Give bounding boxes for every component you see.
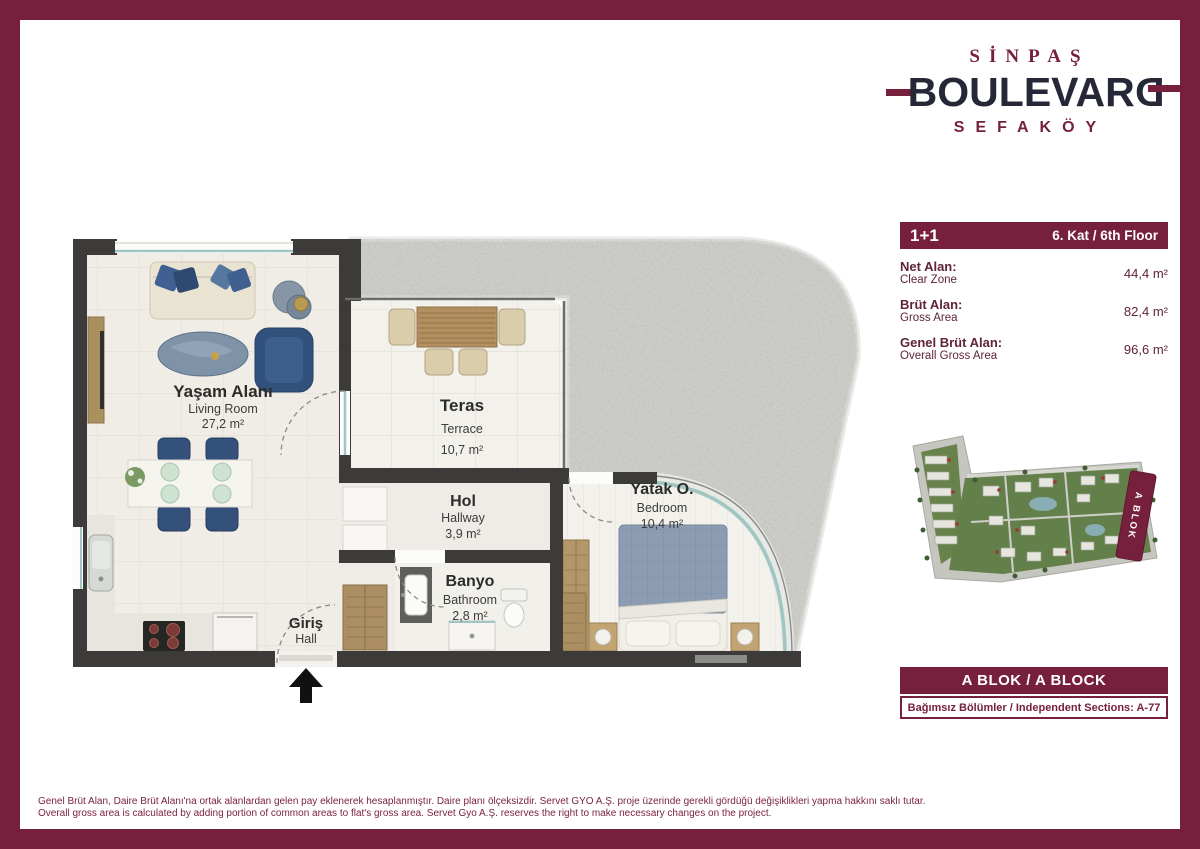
page-frame: SİNPAŞ BOULEVARD SEFAKÖY 1+1 6. Kat / 6t… (0, 0, 1200, 849)
plant (125, 467, 145, 487)
gross-area-label-tr: Brüt Alan: (900, 297, 962, 312)
living-room-name-tr: Yaşam Alanı (173, 382, 273, 401)
overall-gross-label-tr: Genel Brüt Alan: (900, 335, 1002, 350)
entrance-name-tr: Giriş (289, 615, 323, 632)
unit-floor: 6. Kat / 6th Floor (1052, 228, 1158, 243)
disclaimer: Genel Brüt Alan, Daire Brüt Alanı'na ort… (38, 796, 1168, 819)
unit-info-panel: 1+1 6. Kat / 6th Floor Net Alan: Clear Z… (900, 222, 1168, 363)
brand-main-reversed-d: D (1135, 70, 1165, 114)
bathroom-name-tr: Banyo (446, 573, 495, 590)
entrance-name-en: Hall (295, 632, 317, 646)
tv (100, 331, 104, 409)
floor-plan: Yaşam Alanı Living Room 27,2 m² Teras Te… (55, 225, 875, 705)
brand-sub-text: SEFAKÖY (860, 119, 1180, 137)
terrace-name-tr: Teras (440, 396, 484, 415)
hallway-name-en: Hallway (441, 511, 486, 525)
entrance-arrow-icon (289, 668, 323, 703)
living-room-area: 27,2 m² (202, 417, 244, 431)
terrace-chair (425, 349, 453, 375)
terrace-name-en: Terrace (441, 422, 483, 436)
pillow (626, 621, 670, 646)
page-canvas: SİNPAŞ BOULEVARD SEFAKÖY 1+1 6. Kat / 6t… (20, 20, 1180, 829)
brand-main-body: BOULEVAR (908, 70, 1135, 114)
bathroom-door-opening (395, 550, 445, 563)
bedroom-name-tr: Yatak O. (630, 481, 693, 498)
overall-gross-value: 96,6 m² (1124, 342, 1168, 357)
logo-dash-right-icon (1148, 85, 1180, 92)
toilet (501, 589, 527, 601)
cooktop (143, 621, 185, 651)
brand-logo: SİNPAŞ BOULEVARD SEFAKÖY (860, 46, 1180, 137)
gross-area-row: Brüt Alan: Gross Area 82,4 m² (900, 297, 1168, 325)
dining-chair (206, 505, 238, 531)
terrace-chair (499, 309, 525, 345)
block-title-bar: A BLOK / A BLOCK (900, 667, 1168, 694)
kitchen-appliance (213, 613, 257, 651)
lamp (737, 629, 753, 645)
terrace-chair (389, 309, 415, 345)
terrace-chair (459, 349, 487, 375)
unit-info-header: 1+1 6. Kat / 6th Floor (900, 222, 1168, 249)
brand-top-text: SİNPAŞ (860, 46, 1180, 68)
disclaimer-line-tr: Genel Brüt Alan, Daire Brüt Alanı'na ort… (38, 796, 1168, 808)
living-room-name-en: Living Room (188, 402, 257, 416)
dining-chair (206, 438, 238, 462)
hallway-name-tr: Hol (450, 493, 476, 510)
bedroom-door-opening (569, 472, 613, 484)
bathroom-sink (405, 575, 427, 615)
net-area-label-tr: Net Alan: (900, 259, 957, 274)
dining-table (128, 460, 252, 507)
gross-area-label-en: Gross Area (900, 312, 962, 325)
terrace-area: 10,7 m² (441, 443, 483, 457)
gross-area-value: 82,4 m² (1124, 304, 1168, 319)
hallway-area: 3,9 m² (445, 527, 480, 541)
unit-type: 1+1 (910, 226, 939, 246)
site-plan-map: A BLOK (905, 430, 1167, 590)
disclaimer-line-en: Overall gross area is calculated by addi… (38, 808, 1168, 820)
bedroom-area: 10,4 m² (641, 517, 683, 531)
bedroom-name-en: Bedroom (637, 501, 688, 515)
bathroom-area: 2,8 m² (452, 609, 487, 623)
net-area-value: 44,4 m² (1124, 266, 1168, 281)
pillow (676, 621, 720, 646)
net-area-label-en: Clear Zone (900, 274, 957, 287)
overall-gross-area-row: Genel Brüt Alan: Overall Gross Area 96,6… (900, 335, 1168, 363)
brand-main-text: BOULEVARD (860, 70, 1180, 114)
lamp (595, 629, 611, 645)
bathroom-name-en: Bathroom (443, 593, 497, 607)
overall-gross-label-en: Overall Gross Area (900, 350, 1002, 363)
dining-chair (158, 438, 190, 462)
independent-sections-box: Bağımsız Bölümler / Independent Sections… (900, 696, 1168, 719)
net-area-row: Net Alan: Clear Zone 44,4 m² (900, 259, 1168, 287)
dining-chair (158, 505, 190, 531)
